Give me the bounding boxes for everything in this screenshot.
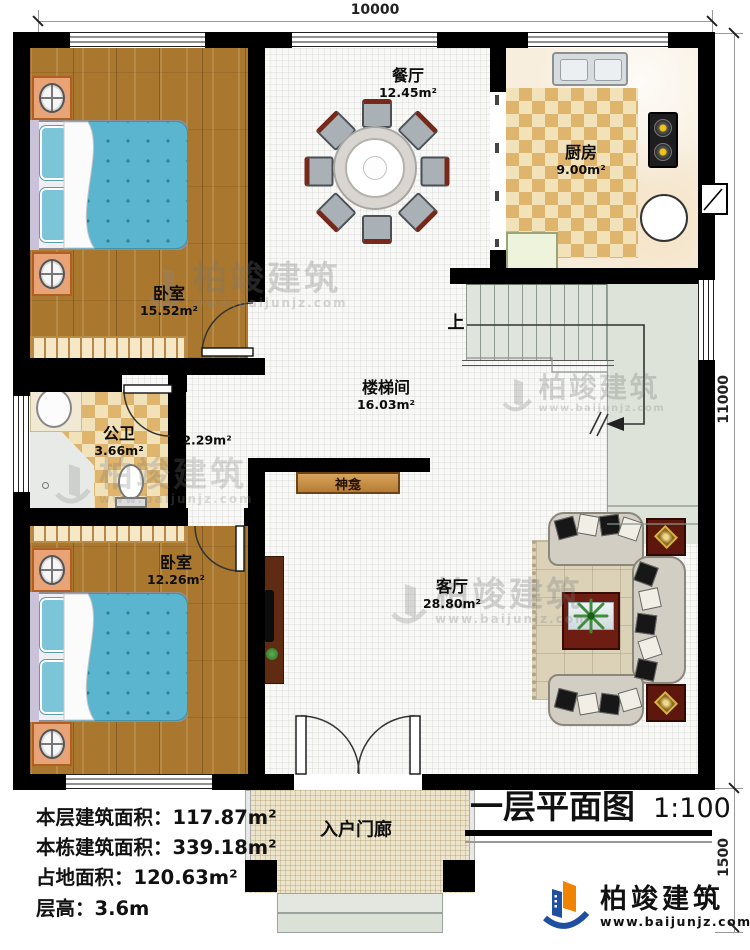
room-label-bedroom-bottom: 卧室 12.26m² xyxy=(147,554,205,588)
bath-sink xyxy=(36,388,72,428)
sink-basin xyxy=(560,59,588,81)
wall xyxy=(13,375,122,392)
pillow xyxy=(40,126,68,180)
coffee-table-glass xyxy=(568,602,614,630)
stat-line: 本栋建筑面积：339.18m² xyxy=(36,833,277,863)
wall xyxy=(490,32,506,92)
wall xyxy=(450,268,698,284)
room-label-hallway: 2.29m² xyxy=(182,434,231,449)
coffee-table xyxy=(562,592,620,650)
lamp-icon xyxy=(39,555,65,585)
dimension-top-value: 10000 xyxy=(351,2,400,18)
window xyxy=(70,32,205,48)
burner-icon xyxy=(654,143,672,161)
kitchen-sink xyxy=(552,52,628,86)
wall xyxy=(698,32,715,790)
nightstand xyxy=(32,252,72,296)
window xyxy=(698,280,715,360)
kitchen-round-basin xyxy=(640,194,688,242)
wall xyxy=(248,458,265,775)
dining-chair xyxy=(362,215,392,244)
sofa-pillow xyxy=(638,587,662,611)
title-rule-thin xyxy=(465,841,712,843)
porch-step xyxy=(277,893,443,913)
bed-headboard xyxy=(30,120,39,250)
drawing-title: 一层平面图 1:100 xyxy=(470,790,731,823)
nightstand xyxy=(32,76,72,120)
window xyxy=(66,774,212,790)
brand-logo-icon xyxy=(540,878,592,936)
dimension-extension xyxy=(715,788,743,789)
lamp-icon xyxy=(39,729,65,759)
kitchen-cabinet xyxy=(506,232,558,272)
toilet xyxy=(118,464,144,500)
window xyxy=(528,32,668,48)
dining-chair xyxy=(305,157,334,187)
area-stats: 本层建筑面积：117.87m² 本栋建筑面积：339.18m² 占地面积：120… xyxy=(36,803,277,924)
pillow xyxy=(40,598,68,652)
title-scale: 1:100 xyxy=(653,795,731,823)
nightstand xyxy=(32,722,72,766)
tv xyxy=(264,590,274,642)
toilet-tank xyxy=(115,497,147,508)
sofa-pillow xyxy=(576,513,599,536)
lamp-icon xyxy=(39,259,65,289)
stairs xyxy=(466,284,607,360)
nightstand xyxy=(32,548,72,592)
sliding-door xyxy=(495,95,499,247)
room-label-dining: 餐厅 12.45m² xyxy=(379,67,437,101)
brand-name: 柏竣建筑 xyxy=(600,885,750,915)
dimension-right-value: 11000 xyxy=(716,375,732,424)
porch-column xyxy=(443,860,475,892)
dimension-extension xyxy=(715,33,743,34)
bed-blanket xyxy=(68,121,188,249)
pillow xyxy=(40,188,68,242)
medallion-icon xyxy=(654,691,678,715)
shrine-label: 神龛 xyxy=(335,474,361,493)
room-label-bedroom-top: 卧室 15.52m² xyxy=(140,285,198,319)
bed-headboard xyxy=(30,592,39,722)
sofa-pillow xyxy=(635,613,658,636)
lamp-icon xyxy=(39,83,65,113)
kitchen-vent xyxy=(700,183,728,215)
sink-basin xyxy=(594,59,622,81)
room-label-bathroom: 公卫 3.66m² xyxy=(94,425,143,459)
wall xyxy=(13,508,188,526)
window xyxy=(292,32,437,48)
brand-block: 柏竣建筑 www.baijunjz.com xyxy=(540,878,750,936)
room-label-living: 客厅 28.80m² xyxy=(423,578,481,612)
stove xyxy=(648,112,678,168)
stat-line: 层高：3.6m xyxy=(36,894,277,924)
bed-blanket xyxy=(68,593,188,721)
dining-chair xyxy=(362,99,392,128)
dining-chair xyxy=(421,157,450,187)
porch-step xyxy=(277,913,443,933)
stat-line: 本层建筑面积：117.87m² xyxy=(36,803,277,833)
dimension-line-right xyxy=(734,33,735,789)
wall xyxy=(248,48,265,302)
plant-icon xyxy=(266,648,278,660)
stair-handrail xyxy=(462,360,614,366)
pillow xyxy=(40,660,68,714)
side-table xyxy=(646,518,686,556)
room-label-porch: 入户门廊 xyxy=(320,819,392,840)
burner-icon xyxy=(654,119,672,137)
dimension-right-lower-value: 1500 xyxy=(716,838,732,877)
lazy-susan xyxy=(363,156,387,180)
stair-up-label: 上 xyxy=(448,313,465,333)
dimension-line-top xyxy=(38,21,712,22)
title-rule-thick xyxy=(465,830,712,836)
stat-line: 占地面积：120.63m² xyxy=(36,863,277,893)
shower-drain xyxy=(42,482,49,489)
entry-opening xyxy=(294,774,422,790)
medallion-icon xyxy=(654,525,678,549)
sofa-pillow xyxy=(576,692,599,715)
room-label-kitchen: 厨房 9.00m² xyxy=(556,144,605,178)
stair-landing xyxy=(607,284,698,544)
sofa-pillow xyxy=(634,658,658,682)
porch-floor xyxy=(245,790,475,893)
title-text: 一层平面图 xyxy=(470,790,635,823)
floor-plan: 神龛 xyxy=(0,0,750,950)
room-label-stairwell: 楼梯间 16.03m² xyxy=(357,379,415,413)
wall xyxy=(248,458,430,472)
shrine: 神龛 xyxy=(296,472,400,494)
side-table xyxy=(646,684,686,722)
window xyxy=(13,396,30,492)
wall xyxy=(30,358,265,375)
